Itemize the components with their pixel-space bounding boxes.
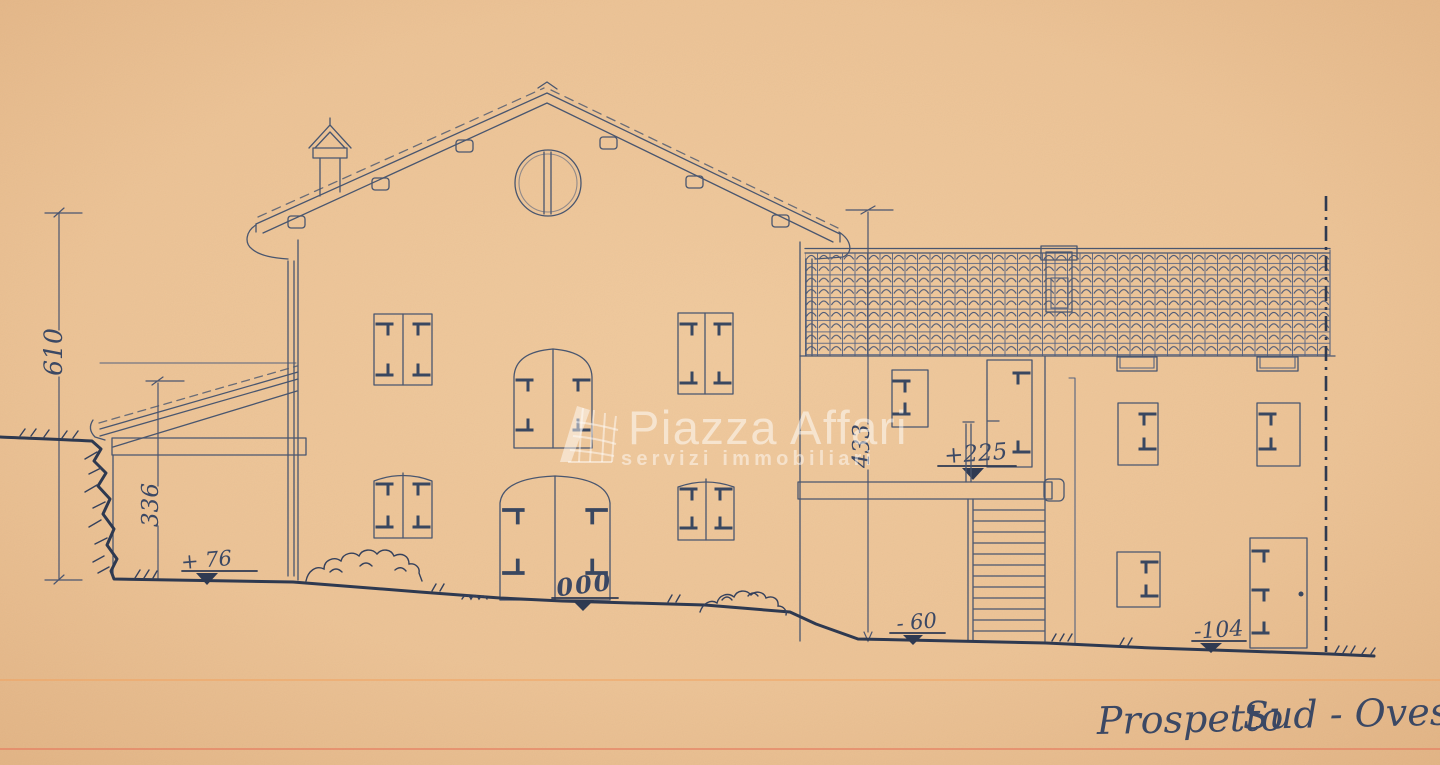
leanto-ground-label: + 76 bbox=[180, 546, 233, 574]
total-height-label: 610 bbox=[39, 328, 68, 376]
door-knob-icon bbox=[1299, 592, 1304, 597]
watermark-brand: Piazza Affari bbox=[628, 401, 908, 454]
watermark-tagline: servizi immobiliari bbox=[621, 448, 875, 470]
stair-base-label: - 60 bbox=[895, 608, 937, 635]
title-word-sud-ovest: Sud - Ovest bbox=[1242, 689, 1440, 738]
annex-tiled-roof bbox=[800, 246, 1335, 356]
stair-landing-label: +225 bbox=[943, 439, 1008, 469]
leanto-height-label: 336 bbox=[138, 483, 164, 527]
scanned-elevation-drawing: 610 336 + 76 bbox=[0, 0, 1440, 765]
